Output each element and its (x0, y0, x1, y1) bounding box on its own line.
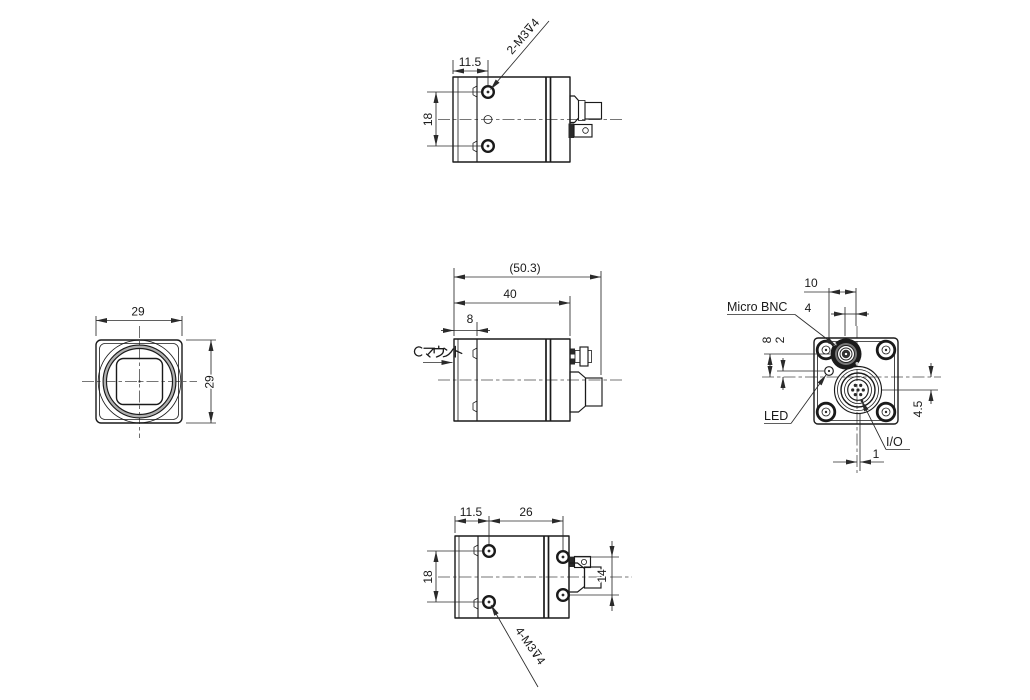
dim-rear-bnc-to-center: 4 (805, 301, 869, 336)
dim-label: 4.5 (911, 400, 925, 417)
bottom-view: 11.5 26 18 14 4-M3⊽4 (421, 505, 632, 687)
dim-label: 4 (805, 301, 812, 315)
bnc-connector-rear (831, 339, 862, 370)
thread-note-top: 2-M3⊽4 (491, 15, 550, 89)
led-label: LED (764, 409, 788, 423)
technical-drawing-page: 11.5 18 2-M3⊽4 29 (0, 0, 1030, 700)
bnc-connector-bottom (570, 557, 591, 568)
dim-label: 2 (773, 336, 787, 343)
dim-side-overall: (50.3) (454, 261, 601, 375)
thread-note-label: 4-M3⊽4 (512, 624, 548, 667)
technical-drawing-canvas: 11.5 18 2-M3⊽4 29 (0, 0, 1030, 700)
dim-label: 26 (519, 505, 533, 519)
io-label: I/O (886, 435, 903, 449)
dim-rear-led-height: 2 (773, 336, 824, 390)
dim-front-width: 29 (96, 305, 182, 337)
dim-rear-led-to-center: 10 (804, 276, 856, 344)
dim-label: (50.3) (509, 261, 540, 275)
dim-bottom-pitch-rear: 14 (570, 541, 619, 611)
bnc-connector-side (571, 347, 592, 366)
dim-label: 29 (203, 375, 217, 389)
screw-holes (483, 545, 569, 608)
micro-bnc-label: Micro BNC (727, 300, 787, 314)
dim-label: 40 (503, 287, 517, 301)
io-connector-side (570, 372, 602, 412)
dim-top-pitch: 18 (421, 92, 481, 146)
top-view: 11.5 18 2-M3⊽4 (421, 15, 624, 162)
dim-label: 14 (595, 569, 609, 583)
dim-label: 11.5 (459, 55, 482, 69)
dim-bottom-span: 26 (489, 505, 563, 550)
dim-label: 1 (873, 447, 880, 461)
front-view: 29 29 (82, 305, 217, 439)
dim-label: 8 (467, 312, 474, 326)
dim-side-front: 8 (441, 312, 490, 336)
dim-bottom-offset: 11.5 (455, 505, 489, 544)
side-view: (50.3) 40 8 (414, 261, 624, 421)
dim-label: 29 (131, 305, 145, 319)
dim-label: 8 (760, 336, 774, 343)
dim-label: 10 (804, 276, 818, 290)
dim-rear-io-off-center: 1 (833, 414, 884, 471)
dim-label: 11.5 (460, 505, 483, 519)
bnc-connector-top (570, 96, 602, 123)
io-connector-rear (835, 367, 882, 414)
dim-label: 18 (421, 570, 435, 584)
led-callout: LED (764, 375, 826, 424)
led-indicator (825, 367, 834, 376)
dim-bottom-pitch-front: 18 (421, 551, 482, 602)
io-connector-top (569, 124, 593, 139)
rear-view: Micro BNC LED I/O 10 4 (727, 276, 941, 473)
dim-label: 18 (421, 113, 435, 127)
